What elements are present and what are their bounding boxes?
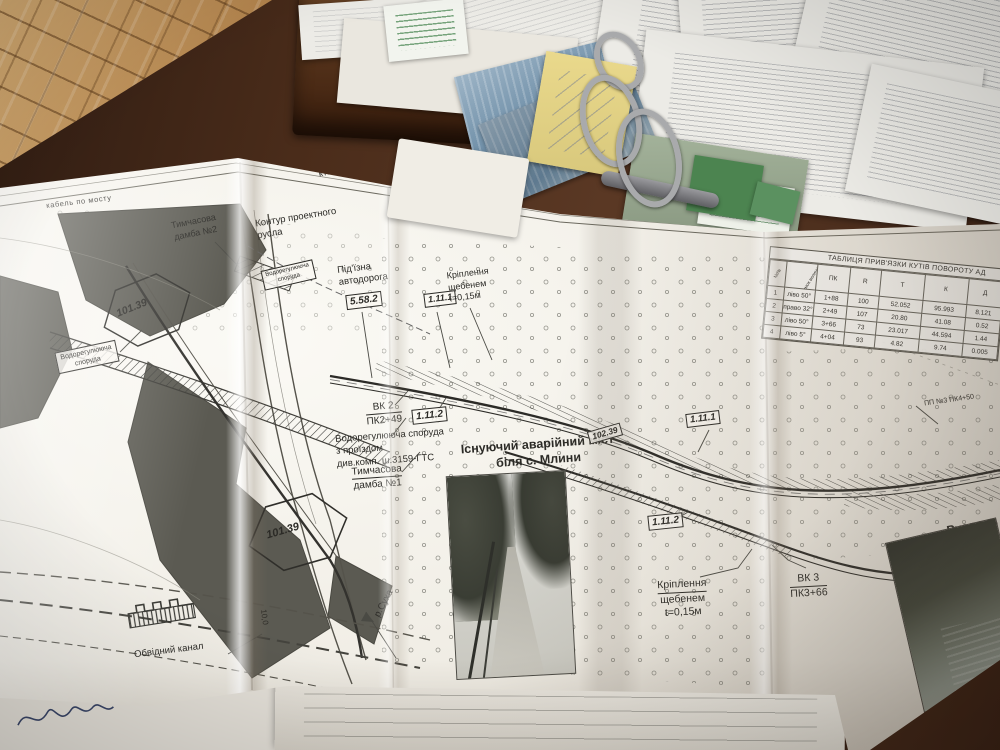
dimension-10-0: 10,0 [258, 609, 270, 626]
green-card-text-lines [395, 9, 456, 51]
desk-photo-scene: кабель по мосту з водних ресурсів Україн… [0, 0, 1000, 750]
label-gravel-top: Кріпленнящебенемt=0,15м [446, 266, 492, 306]
label-vk2: ВК 2ПК2+49 [365, 399, 403, 429]
green-card [383, 0, 468, 62]
label-temp-dam1: Тимчасовадамба №1 [351, 462, 403, 492]
bridge-photo [446, 470, 577, 680]
label-vk3: ВК 3ПК3+66 [789, 571, 828, 601]
label-gravel-right: Кріпленнящебенемt=0,15м [657, 577, 708, 621]
signature-scribble [9, 698, 120, 742]
